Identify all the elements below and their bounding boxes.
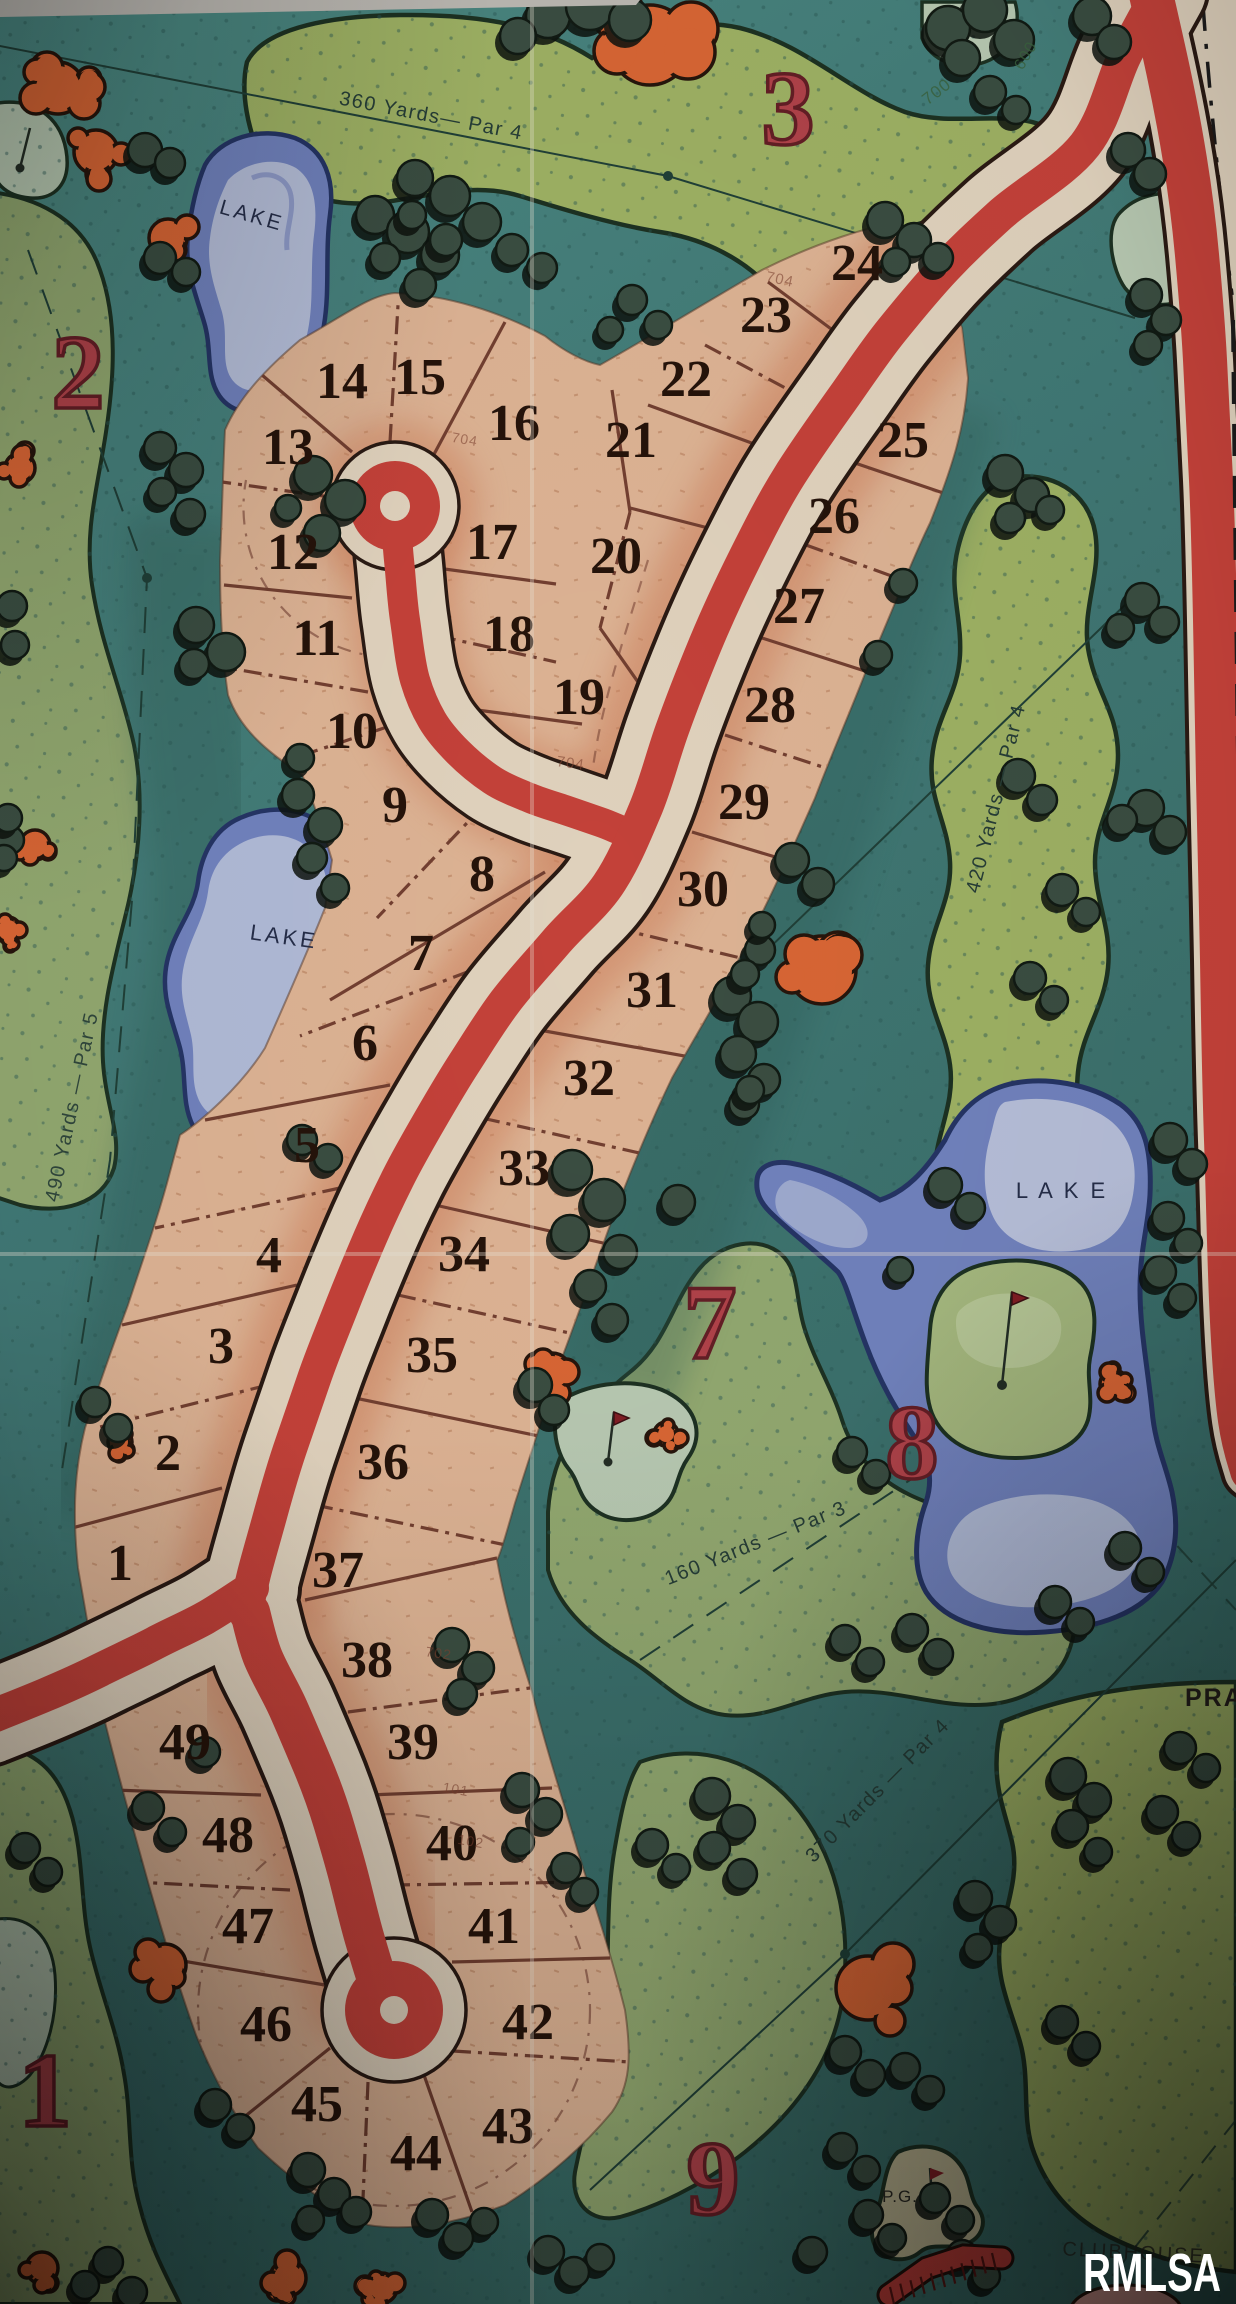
svg-text:RMLSA: RMLSA xyxy=(1083,2243,1221,2303)
